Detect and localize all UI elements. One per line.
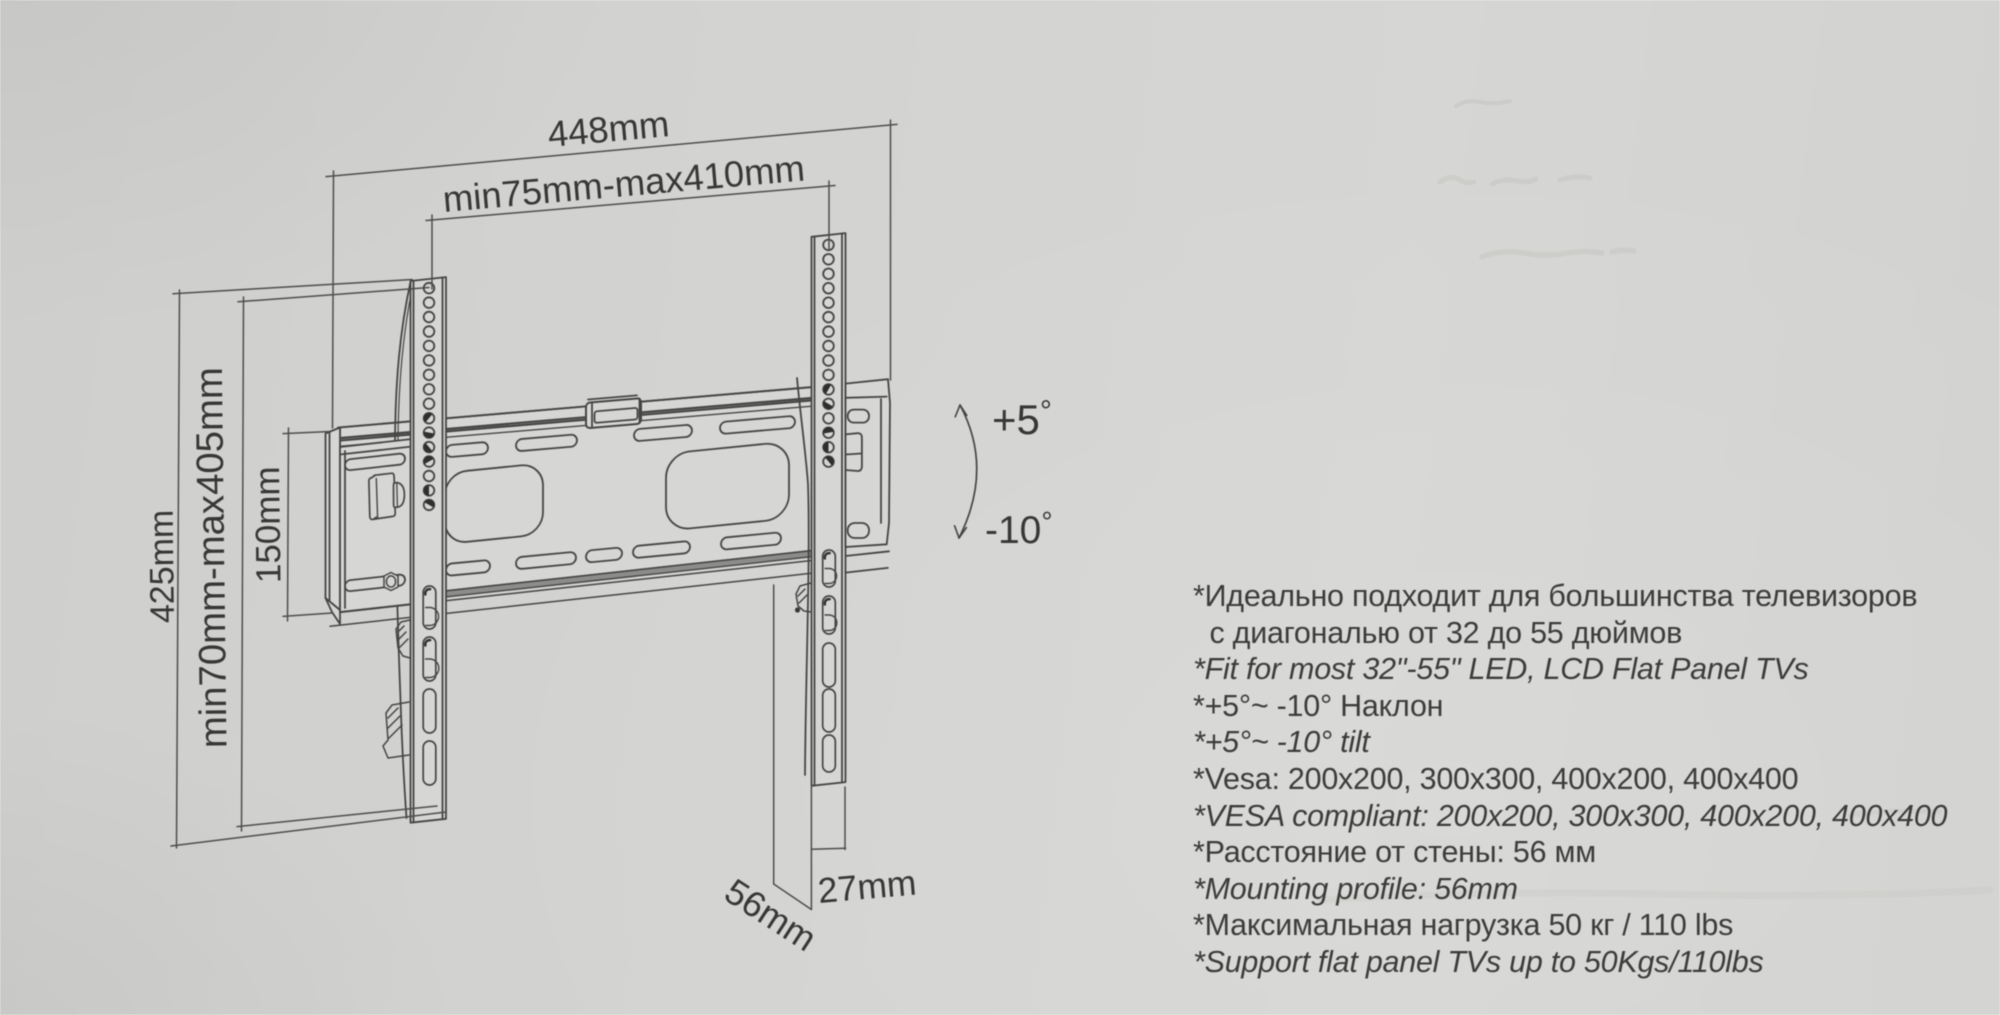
svg-text:+5°: +5° xyxy=(992,395,1052,443)
svg-text:150mm: 150mm xyxy=(248,466,288,583)
svg-text:56mm: 56mm xyxy=(718,870,824,959)
svg-text:-10°: -10° xyxy=(985,506,1053,552)
svg-text:min70mm-max405mm: min70mm-max405mm xyxy=(188,367,236,748)
svg-text:425mm: 425mm xyxy=(143,510,182,624)
svg-text:27mm: 27mm xyxy=(816,863,918,911)
svg-text:min75mm-max410mm: min75mm-max410mm xyxy=(441,147,806,219)
